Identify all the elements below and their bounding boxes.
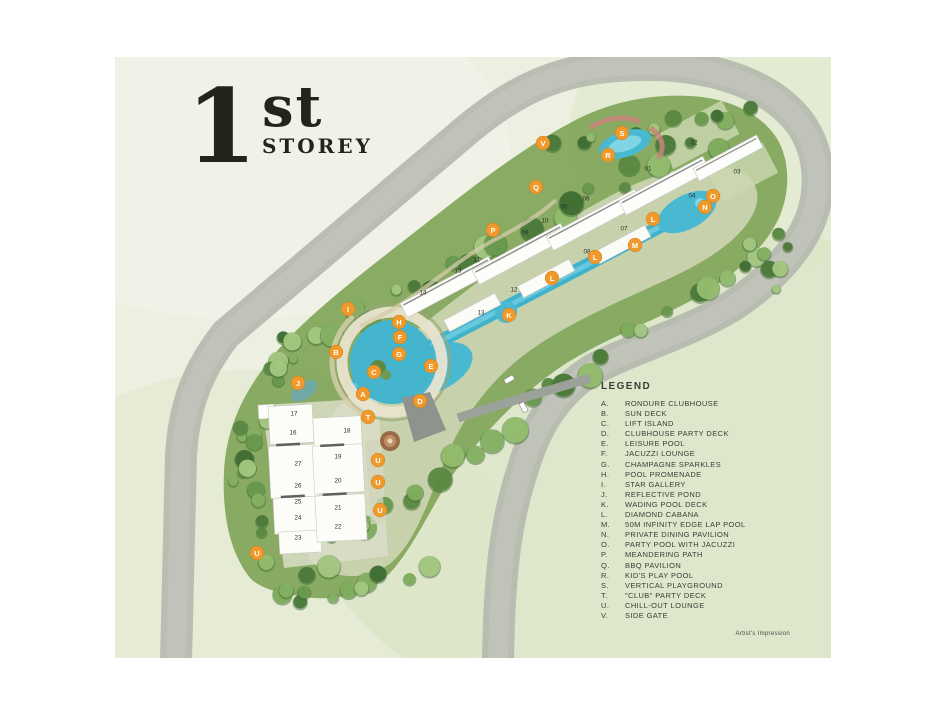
- title-suffix: st: [262, 86, 373, 130]
- map-marker-U-2: U: [371, 475, 385, 489]
- legend-item-key: F.: [601, 449, 625, 459]
- stack-label-15: 15: [455, 268, 462, 275]
- map-marker-K: K: [502, 308, 516, 322]
- legend-item-label: SIDE GATE: [625, 611, 816, 621]
- title-number: 1: [186, 86, 257, 170]
- legend-item-key: G.: [601, 460, 625, 470]
- legend-item-key: Q.: [601, 561, 625, 571]
- stack-label-12: 12: [511, 287, 518, 294]
- legend-item-N: N.PRIVATE DINING PAVILION: [601, 530, 816, 540]
- legend-item-key: P.: [601, 550, 625, 560]
- legend-item-label: SUN DECK: [625, 409, 816, 419]
- legend-item-Q: Q.BBQ PAVILION: [601, 561, 816, 571]
- stack-label-05: 05: [561, 204, 568, 211]
- stack-label-17: 17: [291, 411, 298, 418]
- legend-item-key: A.: [601, 399, 625, 409]
- legend-item-key: E.: [601, 439, 625, 449]
- legend-item-M: M.50M INFINITY EDGE LAP POOL: [601, 520, 816, 530]
- map-marker-L-2: L: [588, 250, 602, 264]
- stack-label-22: 22: [335, 524, 342, 531]
- legend-item-key: J.: [601, 490, 625, 500]
- stack-label-14: 14: [420, 290, 427, 297]
- marker-letter: K: [506, 311, 512, 320]
- site-plan-page: 0102030405060708091011121314151617181920…: [0, 0, 943, 717]
- legend-item-label: LIFT ISLAND: [625, 419, 816, 429]
- legend-item-E: E.LEISURE POOL: [601, 439, 816, 449]
- legend-item-key: N.: [601, 530, 625, 540]
- stack-label-03: 03: [734, 169, 741, 176]
- legend-item-V: V.SIDE GATE: [601, 611, 816, 621]
- legend-item-key: V.: [601, 611, 625, 621]
- legend-item-F: F.JACUZZI LOUNGE: [601, 449, 816, 459]
- marker-letter: L: [651, 215, 656, 224]
- map-marker-R: R: [601, 148, 615, 162]
- stack-label-13: 13: [478, 310, 485, 317]
- marker-letter: U: [375, 478, 380, 487]
- legend-item-L: L.DIAMOND CABANA: [601, 510, 816, 520]
- stack-label-27: 27: [295, 461, 302, 468]
- marker-letter: L: [593, 253, 598, 262]
- legend-item-key: O.: [601, 540, 625, 550]
- marker-letter: T: [366, 413, 371, 422]
- legend-item-I: I.STAR GALLERY: [601, 480, 816, 490]
- map-marker-L-3: L: [646, 212, 660, 226]
- legend-item-S: S.VERTICAL PLAYGROUND: [601, 581, 816, 591]
- legend-item-T: T."CLUB" PARTY DECK: [601, 591, 816, 601]
- legend-item-label: MEANDERING PATH: [625, 550, 816, 560]
- legend-item-key: K.: [601, 500, 625, 510]
- marker-letter: O: [710, 192, 716, 201]
- marker-letter: H: [396, 318, 401, 327]
- legend-item-label: RONDURE CLUBHOUSE: [625, 399, 816, 409]
- map-marker-P: P: [486, 223, 500, 237]
- marker-letter: U: [377, 506, 382, 515]
- marker-letter: B: [333, 348, 339, 357]
- marker-letter: V: [540, 139, 545, 148]
- legend-item-label: JACUZZI LOUNGE: [625, 449, 816, 459]
- legend-item-label: CHAMPAGNE SPARKLES: [625, 460, 816, 470]
- legend-item-label: 50M INFINITY EDGE LAP POOL: [625, 520, 816, 530]
- legend-item-K: K.WADING POOL DECK: [601, 500, 816, 510]
- legend-item-label: VERTICAL PLAYGROUND: [625, 581, 816, 591]
- legend-item-key: B.: [601, 409, 625, 419]
- map-marker-A: A: [356, 387, 370, 401]
- map-marker-D: D: [413, 394, 427, 408]
- map-marker-C: C: [367, 365, 381, 379]
- stack-label-19: 19: [335, 454, 342, 461]
- stack-label-07: 07: [621, 226, 628, 233]
- legend-item-key: L.: [601, 510, 625, 520]
- marker-letter: M: [632, 241, 638, 250]
- legend-item-key: C.: [601, 419, 625, 429]
- stack-label-04: 04: [689, 193, 696, 200]
- legend-item-key: M.: [601, 520, 625, 530]
- legend-item-label: LEISURE POOL: [625, 439, 816, 449]
- legend-item-label: REFLECTIVE POND: [625, 490, 816, 500]
- map-marker-Q: Q: [529, 180, 543, 194]
- marker-letter: D: [417, 397, 423, 406]
- stack-label-06: 06: [583, 196, 590, 203]
- marker-letter: S: [619, 129, 624, 138]
- map-marker-U: U: [371, 453, 385, 467]
- legend-item-key: R.: [601, 571, 625, 581]
- legend-item-label: CHILL-OUT LOUNGE: [625, 601, 816, 611]
- legend-item-R: R.KID'S PLAY POOL: [601, 571, 816, 581]
- title-word: STOREY: [262, 134, 373, 158]
- legend-item-label: CLUBHOUSE PARTY DECK: [625, 429, 816, 439]
- marker-letter: J: [296, 379, 300, 388]
- stack-label-26: 26: [295, 483, 302, 490]
- stack-label-02: 02: [691, 140, 698, 147]
- marker-letter: C: [371, 368, 377, 377]
- legend-item-H: H.POOL PROMENADE: [601, 470, 816, 480]
- marker-letter: R: [605, 151, 611, 160]
- artist-impression-note: Artist's Impression: [650, 631, 790, 637]
- map-marker-G: G: [392, 347, 406, 361]
- stack-label-21: 21: [335, 505, 342, 512]
- legend-item-label: KID'S PLAY POOL: [625, 571, 816, 581]
- marker-letter: Q: [533, 183, 539, 192]
- legend-item-key: T.: [601, 591, 625, 601]
- legend-item-label: WADING POOL DECK: [625, 500, 816, 510]
- marker-letter: N: [702, 203, 707, 212]
- legend-item-label: BBQ PAVILION: [625, 561, 816, 571]
- legend-item-key: I.: [601, 480, 625, 490]
- stack-label-18: 18: [344, 428, 351, 435]
- map-marker-U-4: U: [250, 546, 264, 560]
- stack-label-25: 25: [295, 499, 302, 506]
- legend-item-O: O.PARTY POOL WITH JACUZZI: [601, 540, 816, 550]
- marker-letter: A: [360, 390, 366, 399]
- map-marker-T: T: [361, 410, 375, 424]
- legend-item-key: U.: [601, 601, 625, 611]
- stack-label-11: 11: [474, 257, 481, 264]
- map-marker-V: V: [536, 136, 550, 150]
- map-marker-I: I: [341, 302, 355, 316]
- marker-letter: I: [347, 305, 349, 314]
- map-marker-B: B: [329, 345, 343, 359]
- map-marker-S: S: [615, 126, 629, 140]
- stack-label-16: 16: [290, 430, 297, 437]
- legend-item-label: POOL PROMENADE: [625, 470, 816, 480]
- legend-item-D: D.CLUBHOUSE PARTY DECK: [601, 429, 816, 439]
- marker-letter: E: [428, 362, 433, 371]
- map-marker-U-3: U: [373, 503, 387, 517]
- legend-item-label: PARTY POOL WITH JACUZZI: [625, 540, 816, 550]
- legend-item-label: PRIVATE DINING PAVILION: [625, 530, 816, 540]
- legend-item-key: D.: [601, 429, 625, 439]
- buildings-lower: [258, 400, 368, 555]
- marker-letter: U: [254, 549, 259, 558]
- legend-item-B: B.SUN DECK: [601, 409, 816, 419]
- page-title: 1 st STOREY: [186, 86, 373, 170]
- legend-item-label: DIAMOND CABANA: [625, 510, 816, 520]
- legend: LEGEND A.RONDURE CLUBHOUSEB.SUN DECKC.LI…: [601, 381, 816, 621]
- marker-letter: L: [550, 274, 555, 283]
- stack-label-01: 01: [645, 166, 652, 173]
- map-marker-M: M: [628, 238, 642, 252]
- legend-list: A.RONDURE CLUBHOUSEB.SUN DECKC.LIFT ISLA…: [601, 399, 816, 621]
- marker-letter: G: [396, 350, 402, 359]
- legend-item-key: H.: [601, 470, 625, 480]
- legend-item-label: STAR GALLERY: [625, 480, 816, 490]
- legend-heading: LEGEND: [601, 381, 816, 392]
- marker-letter: U: [375, 456, 380, 465]
- stack-label-23: 23: [295, 535, 302, 542]
- map-marker-L: L: [545, 271, 559, 285]
- stack-label-20: 20: [335, 478, 342, 485]
- map-marker-J: J: [291, 376, 305, 390]
- stack-label-10: 10: [542, 218, 549, 225]
- legend-item-P: P.MEANDERING PATH: [601, 550, 816, 560]
- legend-item-C: C.LIFT ISLAND: [601, 419, 816, 429]
- map-marker-F: F: [393, 330, 407, 344]
- map-marker-O: O: [706, 189, 720, 203]
- marker-letter: F: [398, 333, 403, 342]
- legend-item-key: S.: [601, 581, 625, 591]
- legend-item-J: J.REFLECTIVE POND: [601, 490, 816, 500]
- legend-item-G: G.CHAMPAGNE SPARKLES: [601, 460, 816, 470]
- stack-label-24: 24: [295, 515, 302, 522]
- legend-item-A: A.RONDURE CLUBHOUSE: [601, 399, 816, 409]
- map-marker-E: E: [424, 359, 438, 373]
- marker-letter: P: [490, 226, 495, 235]
- stack-label-09: 09: [522, 230, 529, 237]
- legend-item-U: U.CHILL-OUT LOUNGE: [601, 601, 816, 611]
- map-marker-H: H: [392, 315, 406, 329]
- legend-item-label: "CLUB" PARTY DECK: [625, 591, 816, 601]
